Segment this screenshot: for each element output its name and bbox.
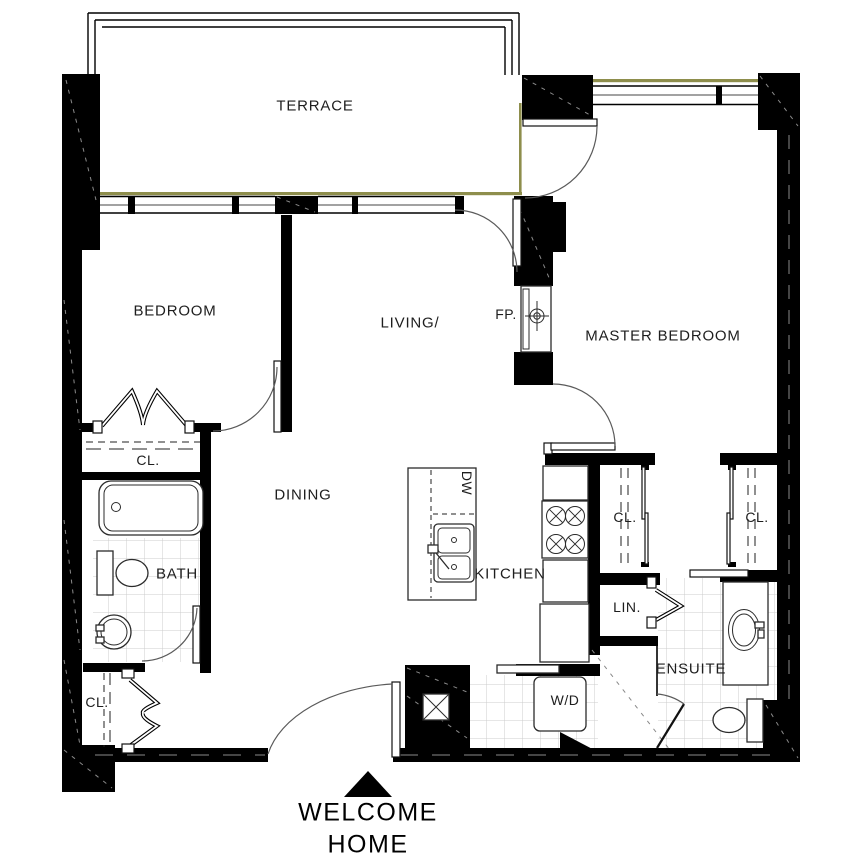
label-dishwasher: DW bbox=[459, 471, 475, 495]
stove-icon bbox=[542, 501, 588, 558]
entry-closet-bifold bbox=[122, 669, 157, 753]
label-kitchen: KITCHEN bbox=[474, 566, 545, 583]
label-ensuite: ENSUITE bbox=[656, 661, 727, 678]
label-closet-bedroom: CL. bbox=[136, 452, 159, 468]
floor-plan: TERRACE BEDROOM LIVING/ FP. MASTER BEDRO… bbox=[0, 0, 856, 864]
master-terrace-door bbox=[523, 119, 597, 198]
label-bedroom: BEDROOM bbox=[133, 303, 216, 320]
label-terrace: TERRACE bbox=[276, 98, 353, 115]
bath-sink-icon bbox=[96, 615, 131, 649]
closet-sliding-doors bbox=[642, 467, 748, 577]
floor-plan-drawing bbox=[0, 0, 856, 864]
label-dining: DINING bbox=[274, 487, 331, 504]
bathtub-icon bbox=[99, 481, 203, 535]
window-mullion bbox=[716, 86, 722, 104]
label-linen: LIN. bbox=[613, 599, 641, 615]
welcome-line2: HOME bbox=[328, 831, 409, 860]
entry-door bbox=[268, 682, 400, 757]
label-master-bedroom: MASTER BEDROOM bbox=[585, 328, 740, 345]
ensuite-sink-icon bbox=[723, 582, 768, 685]
bedroom-door bbox=[213, 361, 281, 432]
living-terrace-door bbox=[455, 199, 521, 272]
terrace-side-sill bbox=[519, 103, 522, 195]
shaft-icon bbox=[423, 694, 449, 720]
label-fireplace: FP. bbox=[495, 306, 516, 322]
label-closet-hall: CL. bbox=[613, 509, 636, 525]
kitchen-sink-icon bbox=[428, 524, 474, 582]
terrace-sill bbox=[85, 192, 522, 195]
fireplace-icon bbox=[521, 286, 551, 352]
master-bedroom-door bbox=[544, 384, 615, 454]
label-bath: BATH bbox=[156, 566, 198, 583]
welcome-line1: WELCOME bbox=[298, 799, 438, 828]
windows bbox=[85, 79, 758, 213]
terrace-railing bbox=[85, 13, 519, 86]
welcome-home-marker bbox=[344, 771, 392, 797]
bedroom-closet-bifold bbox=[93, 391, 194, 433]
label-closet-entry: CL. bbox=[85, 694, 108, 710]
label-closet-master: CL. bbox=[745, 509, 768, 525]
label-living: LIVING/ bbox=[381, 315, 440, 332]
label-washer-dryer: W/D bbox=[551, 692, 580, 708]
